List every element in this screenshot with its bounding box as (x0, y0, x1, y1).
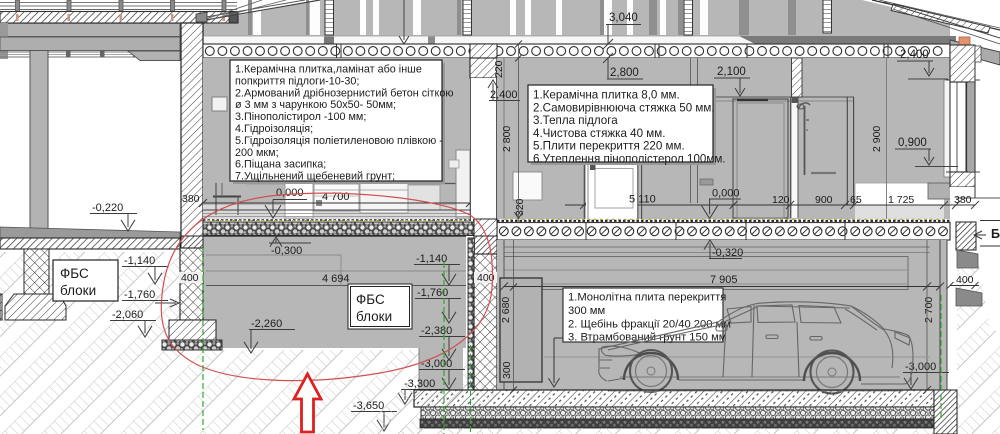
svg-text:0,000: 0,000 (712, 188, 740, 200)
svg-text:2 900: 2 900 (871, 126, 883, 152)
svg-text:-1,140: -1,140 (416, 253, 447, 265)
svg-text:300 мм: 300 мм (568, 305, 605, 317)
svg-text:попкриття підлоги-10-30;: попкриття підлоги-10-30; (235, 75, 359, 87)
svg-text:3,040: 3,040 (609, 12, 638, 24)
svg-text:2,400: 2,400 (900, 49, 929, 61)
svg-text:4.Гідроізоляція;: 4.Гідроізоляція; (235, 123, 313, 135)
svg-text:-1,140: -1,140 (124, 255, 155, 267)
svg-text:220: 220 (493, 60, 505, 78)
svg-text:Б: Б (991, 227, 1000, 241)
svg-text:65: 65 (850, 194, 862, 206)
svg-text:-3,000: -3,000 (421, 358, 452, 370)
svg-text:300: 300 (501, 361, 513, 379)
svg-text:-2,380: -2,380 (421, 325, 452, 337)
svg-text:400: 400 (956, 274, 974, 286)
svg-text:ø 3 мм з чарункою 50х50- 50мм;: ø 3 мм з чарункою 50х50- 50мм; (235, 99, 396, 111)
svg-text:4 694: 4 694 (322, 273, 350, 285)
svg-text:0,000: 0,000 (276, 187, 304, 199)
svg-text:6.Утеплення пінополістерол 100: 6.Утеплення пінополістерол 100мм. (533, 153, 726, 166)
svg-text:-0,220: -0,220 (92, 202, 123, 214)
svg-text:-0,320: -0,320 (712, 247, 743, 259)
svg-text:блоки: блоки (60, 283, 96, 298)
svg-text:3.Пінополістирол -100 мм;: 3.Пінополістирол -100 мм; (235, 111, 366, 123)
svg-text:1.Керамічна плитка 8,0 мм.: 1.Керамічна плитка 8,0 мм. (533, 89, 680, 102)
svg-text:5.Гідроізоляція поліетиленовою: 5.Гідроізоляція поліетиленовою плівкою - (235, 135, 443, 147)
svg-text:200 мкм;: 200 мкм; (235, 147, 279, 159)
svg-text:5.Плити перекриття 220 мм.: 5.Плити перекриття 220 мм. (533, 140, 685, 153)
svg-text:7.Ущільнений щебеневий грунт;: 7.Ущільнений щебеневий грунт; (235, 171, 395, 183)
svg-text:блоки: блоки (356, 309, 392, 324)
svg-text:900: 900 (815, 194, 833, 206)
svg-text:2,800: 2,800 (610, 67, 639, 79)
svg-text:4.Чистова стяжка 40 мм.: 4.Чистова стяжка 40 мм. (533, 127, 665, 140)
svg-text:7 905: 7 905 (710, 274, 738, 286)
svg-text:2.Самовирівнююча стяжка 50 мм.: 2.Самовирівнююча стяжка 50 мм. (533, 101, 715, 114)
svg-text:2 680: 2 680 (500, 297, 512, 323)
svg-text:-2,260: -2,260 (251, 318, 282, 330)
svg-text:0,900: 0,900 (898, 137, 927, 149)
svg-text:120: 120 (772, 194, 790, 206)
svg-text:-2,060: -2,060 (112, 309, 143, 321)
svg-text:2 800: 2 800 (501, 126, 513, 152)
svg-text:400: 400 (181, 272, 199, 284)
svg-text:2.Армований дрібнозернистий бе: 2.Армований дрібнозернистий бетон сіткою (235, 87, 453, 99)
svg-text:-3,000: -3,000 (905, 361, 936, 373)
svg-text:1.Монолітна плита перекриття: 1.Монолітна плита перекриття (568, 292, 726, 304)
svg-text:ФБС: ФБС (356, 292, 385, 307)
svg-text:6.Піщана засипка;: 6.Піщана засипка; (235, 159, 326, 171)
svg-text:-3,650: -3,650 (353, 400, 384, 412)
svg-text:2 700: 2 700 (923, 297, 935, 323)
svg-text:1 725: 1 725 (888, 194, 914, 206)
svg-text:2,400: 2,400 (490, 89, 518, 101)
svg-text:-0,300: -0,300 (271, 245, 302, 257)
svg-text:-1,760: -1,760 (124, 289, 155, 301)
svg-text:5 110: 5 110 (629, 194, 656, 206)
svg-text:2,100: 2,100 (717, 66, 746, 78)
svg-text:1.Керамічна плитка,ламінат або: 1.Керамічна плитка,ламінат або інше (235, 64, 422, 76)
svg-text:380: 380 (182, 193, 200, 205)
svg-text:3.Тепла підлога: 3.Тепла підлога (533, 114, 618, 127)
svg-text:ФБС: ФБС (60, 266, 89, 281)
svg-text:-3,300: -3,300 (404, 378, 435, 390)
